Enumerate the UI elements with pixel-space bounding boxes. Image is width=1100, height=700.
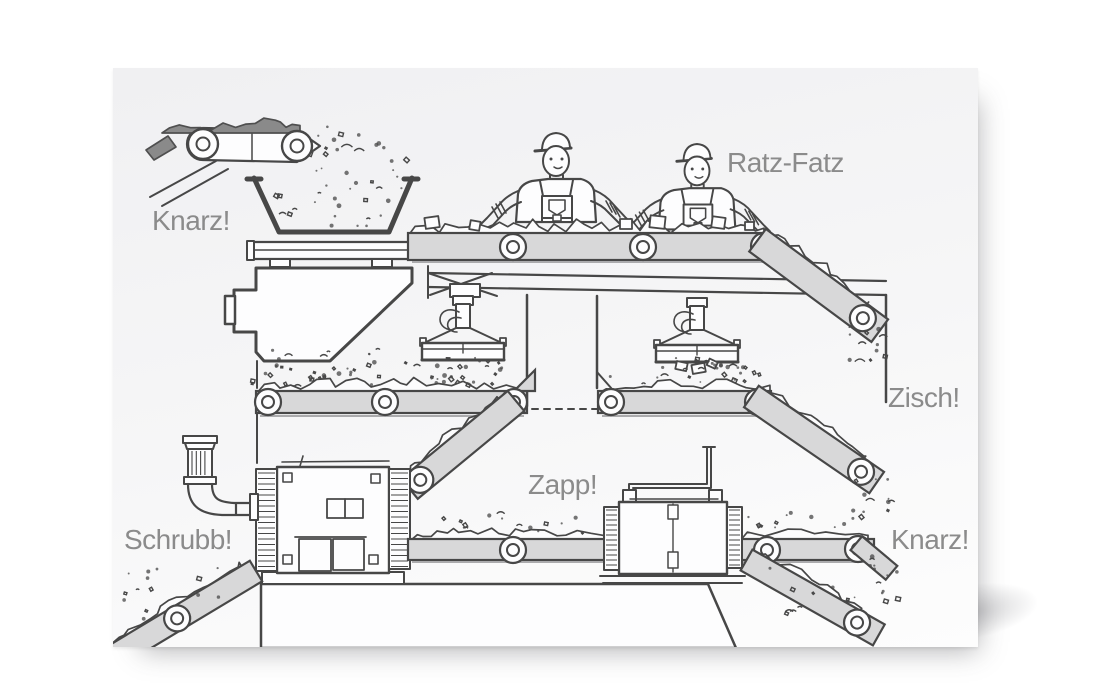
debris-scatter — [848, 327, 888, 362]
debris-scatter — [442, 512, 583, 534]
chimney-vent — [183, 436, 258, 520]
hopper — [247, 178, 418, 267]
shredder-machine — [225, 268, 412, 463]
label-ratz-fatz: Ratz-Fatz — [727, 147, 844, 178]
infeed-conveyor-bottom — [113, 554, 263, 647]
incline-conveyor-2 — [744, 380, 888, 494]
label-schrubb: Schrubb! — [124, 524, 232, 555]
foundation-block — [261, 584, 736, 647]
incline-conveyor-1 — [749, 222, 893, 342]
mid-conveyor-right — [598, 379, 771, 416]
label-zisch: Zisch! — [888, 382, 960, 413]
plant-illustration: Knarz! Ratz-Fatz — [113, 68, 978, 647]
label-knarz-top: Knarz! — [152, 205, 230, 236]
label-zapp: Zapp! — [528, 469, 597, 500]
label-knarz-bottom: Knarz! — [891, 524, 969, 555]
worker-left — [481, 133, 632, 228]
debris-scatter — [747, 511, 854, 528]
washer-machine — [256, 456, 410, 584]
illustration-card: Knarz! Ratz-Fatz — [113, 68, 978, 647]
eddy-separator — [600, 447, 745, 583]
magnet-separator-left — [420, 296, 506, 360]
infeed-conveyor-top — [146, 118, 320, 206]
